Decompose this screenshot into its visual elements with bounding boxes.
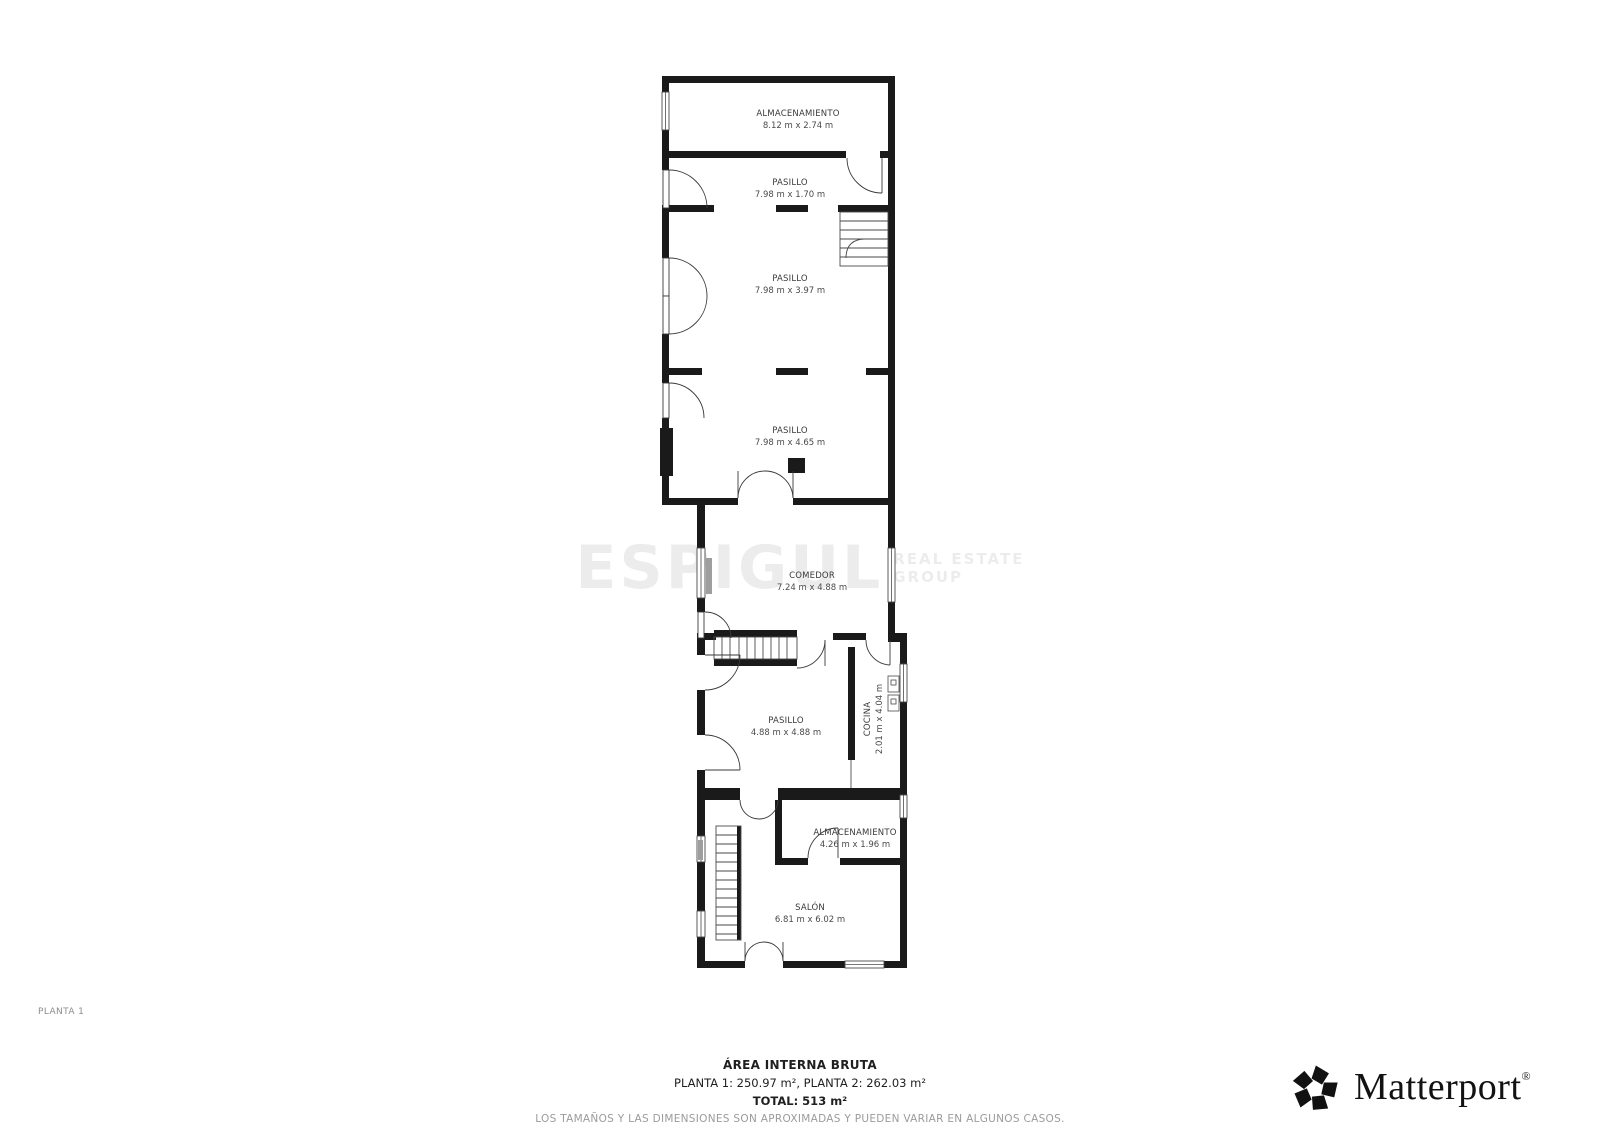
room-dims: 7.98 m x 1.70 m [755, 189, 825, 201]
room-dims: 6.81 m x 6.02 m [775, 914, 845, 926]
matterport-pinwheel-icon [1288, 1062, 1342, 1116]
room-dims: 2.01 m x 4.04 m [874, 684, 886, 754]
room-name: PASILLO [755, 425, 825, 437]
room-name: PASILLO [755, 273, 825, 285]
room-name: SALÓN [775, 902, 845, 914]
room-name: ALMACENAMIENTO [756, 108, 839, 120]
floor-plan-drawing [0, 0, 1600, 1131]
room-name: ALMACENAMIENTO [813, 827, 896, 839]
matterport-logo: Matterport® [1288, 1062, 1531, 1116]
room-name: COCINA [862, 684, 874, 754]
room-label-almacenamiento-2: ALMACENAMIENTO 4.26 m x 1.96 m [813, 827, 896, 851]
room-label-cocina: COCINA 2.01 m x 4.04 m [862, 684, 886, 754]
room-label-pasillo-2: PASILLO 7.98 m x 3.97 m [755, 273, 825, 297]
matterport-wordmark: Matterport® [1354, 1068, 1531, 1106]
registered-trademark-symbol: ® [1522, 1069, 1532, 1083]
room-dims: 7.24 m x 4.88 m [777, 582, 847, 594]
floor-label: PLANTA 1 [38, 1007, 84, 1017]
room-dims: 8.12 m x 2.74 m [756, 120, 839, 132]
room-dims: 4.88 m x 4.88 m [751, 727, 821, 739]
room-name: COMEDOR [777, 570, 847, 582]
room-label-pasillo-3: PASILLO 7.98 m x 4.65 m [755, 425, 825, 449]
room-name: PASILLO [751, 715, 821, 727]
floorplan-page: ESPIGUL REAL ESTATE GROUP [0, 0, 1600, 1131]
room-dims: 4.26 m x 1.96 m [813, 839, 896, 851]
room-label-comedor: COMEDOR 7.24 m x 4.88 m [777, 570, 847, 594]
room-label-almacenamiento-1: ALMACENAMIENTO 8.12 m x 2.74 m [756, 108, 839, 132]
room-label-pasillo-4: PASILLO 4.88 m x 4.88 m [751, 715, 821, 739]
room-name: PASILLO [755, 177, 825, 189]
room-label-pasillo-1: PASILLO 7.98 m x 1.70 m [755, 177, 825, 201]
kitchen-sink [888, 676, 899, 711]
room-dims: 7.98 m x 3.97 m [755, 285, 825, 297]
room-dims: 7.98 m x 4.65 m [755, 437, 825, 449]
room-label-salon: SALÓN 6.81 m x 6.02 m [775, 902, 845, 926]
